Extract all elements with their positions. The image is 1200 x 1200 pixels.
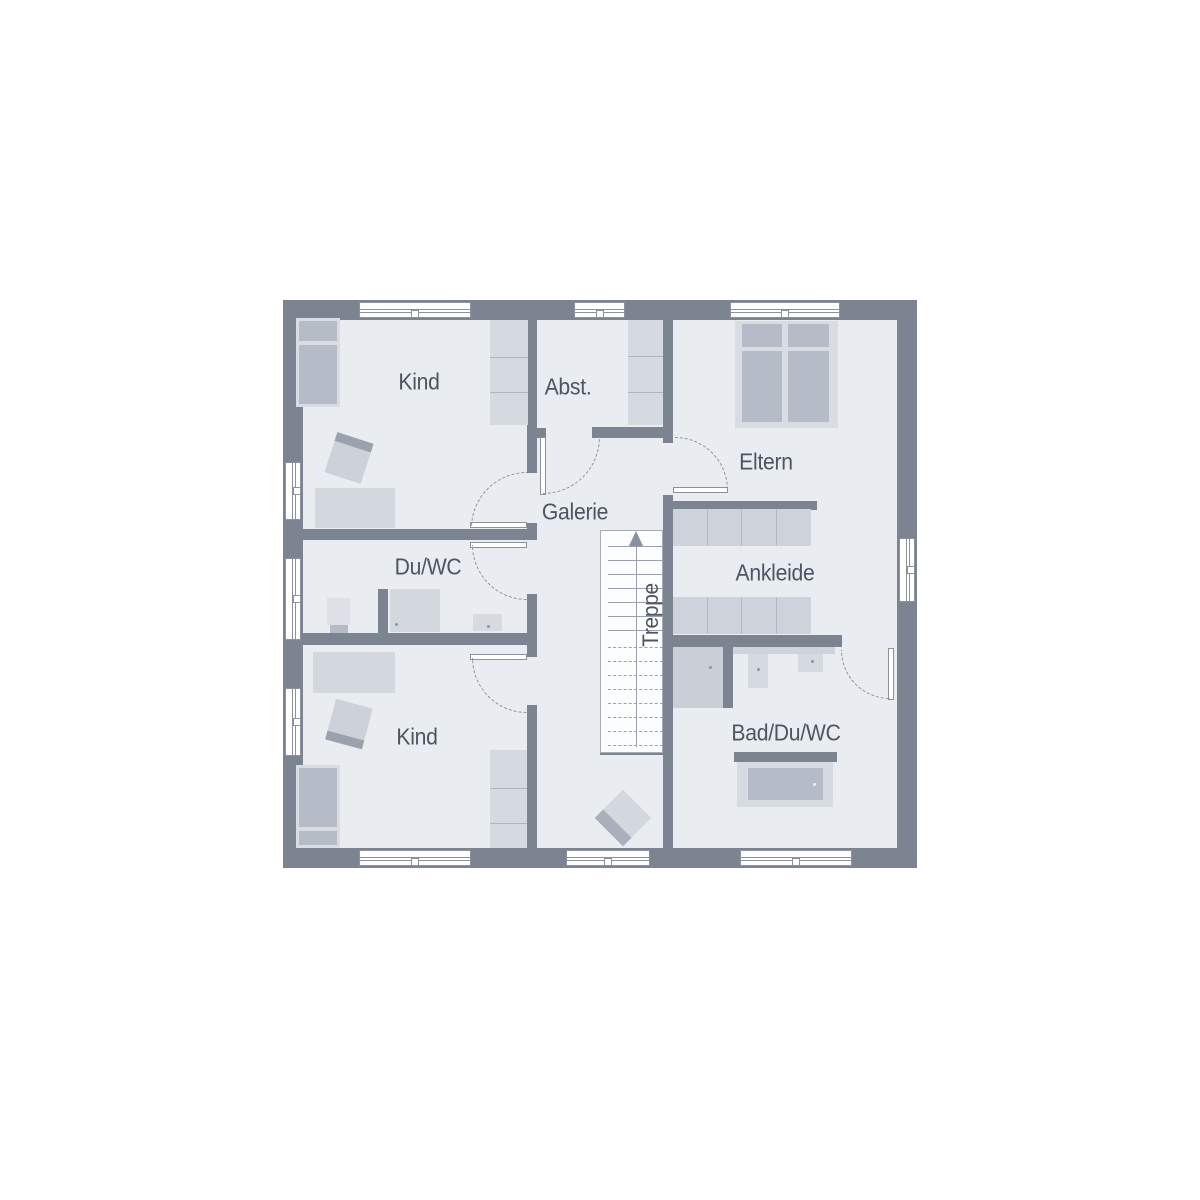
shower-duwc — [390, 589, 440, 632]
bed-pillow — [299, 321, 337, 341]
wall-center-vertical — [663, 495, 673, 848]
wall-kind-duwc — [303, 529, 537, 540]
floor-plan: Kind Abst. Eltern Galerie Du/WC Ankleide… — [283, 300, 917, 868]
bed-mattress — [299, 768, 337, 827]
window-bottom-galerie — [566, 850, 650, 866]
stair-up-arrow-icon — [629, 531, 643, 546]
wall-bathtub — [734, 752, 837, 762]
room-label-abst: Abst. — [545, 374, 592, 401]
window-top-abst — [574, 302, 625, 318]
room-label-treppe: Treppe — [638, 583, 664, 647]
window-handle-icon — [604, 858, 612, 866]
window-handle-icon — [293, 595, 301, 603]
room-label-duwc: Du/WC — [395, 554, 462, 581]
stair-center-line — [636, 546, 637, 747]
room-label-kind-top: Kind — [398, 369, 439, 396]
bed-mattress — [788, 351, 829, 422]
bed-kind-bottom — [296, 765, 340, 848]
toilet-duwc — [327, 598, 350, 625]
bed-mattress — [299, 345, 337, 404]
window-handle-icon — [792, 858, 800, 866]
window-handle-icon — [596, 310, 604, 318]
room-label-bad: Bad/Du/WC — [731, 720, 840, 747]
room-label-kind-bottom: Kind — [396, 724, 437, 751]
bathroom-counter — [733, 647, 835, 654]
window-left-duwc — [285, 558, 301, 640]
wardrobe-kind-top — [490, 320, 528, 425]
window-handle-icon — [411, 858, 419, 866]
bathtub — [737, 762, 833, 807]
bed-eltern — [735, 321, 838, 428]
wall-galerie-mid — [527, 594, 537, 657]
window-left-kind-bottom — [285, 688, 301, 756]
room-label-ankleide: Ankleide — [736, 560, 815, 587]
bed-pillow — [742, 324, 782, 347]
bed-pillow — [299, 831, 337, 845]
wall-duwc-kind — [303, 633, 537, 645]
bed-kind-top — [296, 318, 340, 407]
window-handle-icon — [411, 310, 419, 318]
window-right-eltern — [899, 538, 915, 602]
toilet-bad — [748, 654, 768, 688]
room-label-eltern: Eltern — [739, 449, 793, 476]
wardrobe-ankleide-top — [673, 509, 811, 546]
wall-duwc-stub — [378, 589, 388, 645]
room-label-galerie: Galerie — [542, 499, 608, 526]
wardrobe-ankleide-bottom — [673, 597, 811, 634]
bed-pillow — [788, 324, 829, 347]
window-handle-icon — [293, 718, 301, 726]
sink-duwc — [473, 614, 502, 631]
wall-abst-bottom — [592, 427, 672, 438]
wall-abst-eltern — [663, 320, 673, 443]
window-left-kind-top — [285, 462, 301, 520]
window-handle-icon — [293, 487, 301, 495]
wardrobe-kind-bottom — [490, 750, 527, 848]
floor-plan-canvas: Kind Abst. Eltern Galerie Du/WC Ankleide… — [0, 0, 1200, 1200]
window-bottom-bad — [740, 850, 852, 866]
shelf-abst — [628, 320, 663, 425]
sink-bad — [798, 654, 823, 672]
window-handle-icon — [781, 310, 789, 318]
toilet-duwc-base — [330, 625, 348, 633]
wall-kind-bottom-galerie — [527, 705, 537, 848]
window-top-eltern — [730, 302, 840, 318]
wall-kind-galerie — [527, 320, 537, 473]
window-bottom-kind — [359, 850, 471, 866]
bathtub-inner — [748, 768, 823, 800]
window-top-kind — [359, 302, 471, 318]
desk-kind-top — [315, 488, 395, 528]
shower-bad — [673, 647, 723, 708]
wall-ankleide-bottom — [663, 635, 842, 647]
bed-mattress — [742, 351, 782, 422]
window-handle-icon — [907, 566, 915, 574]
wall-shower-stub — [723, 635, 733, 708]
wall-corner-block — [527, 523, 537, 540]
desk-kind-bottom — [313, 652, 395, 693]
